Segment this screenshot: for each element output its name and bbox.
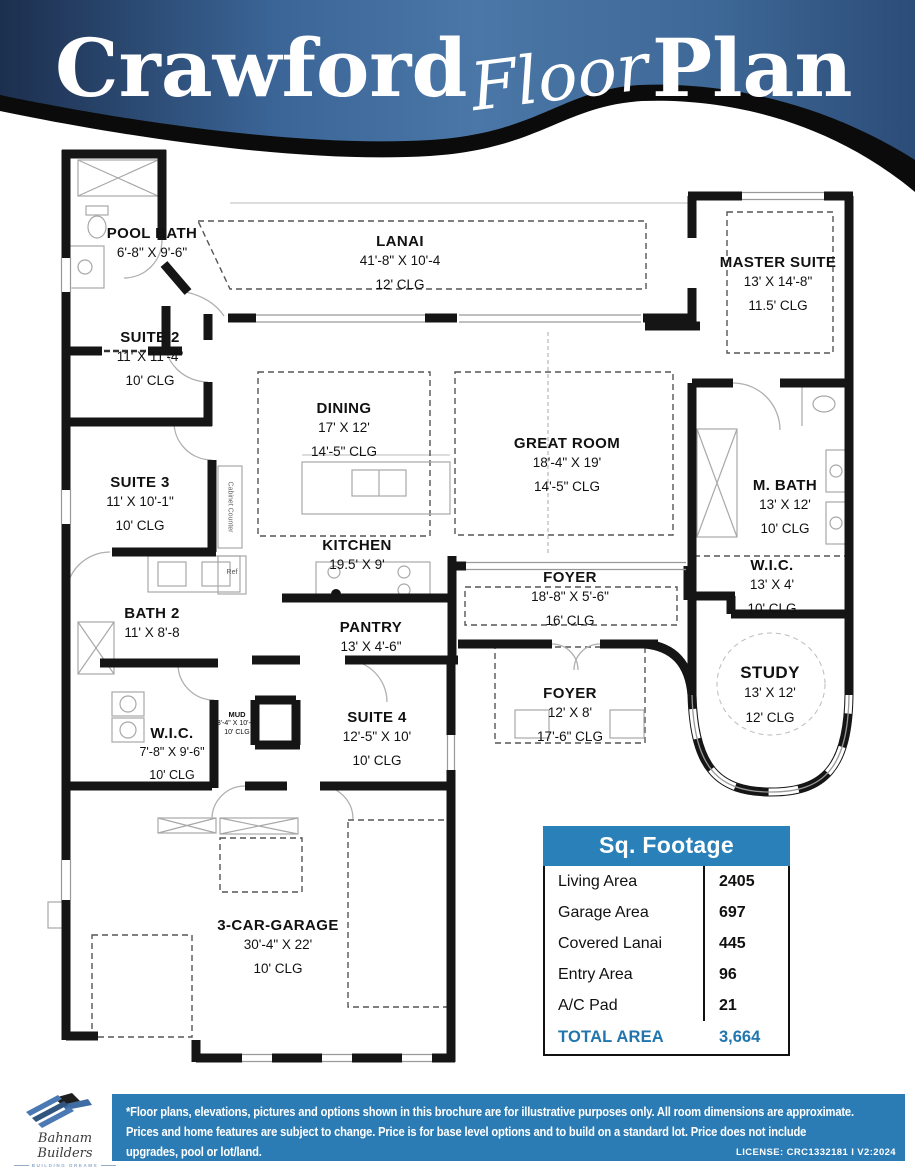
room-clg: 16' CLG (531, 612, 609, 630)
room-clg: 10' CLG (106, 517, 174, 535)
room-name: W.I.C. (747, 556, 796, 576)
tagline-text: BUILDING DREAMS (32, 1163, 99, 1168)
room-name: KITCHEN (322, 536, 391, 556)
row-value: 96 (703, 959, 788, 990)
room-label-study: STUDY 13' X 12' 12' CLG (740, 662, 800, 726)
room-name: M. BATH (753, 476, 817, 496)
room-label-kitchen: KITCHEN 19.5' X 9' (322, 536, 391, 573)
room-dims: 13' X 4' (747, 576, 796, 594)
row-value: 445 (703, 928, 788, 959)
room-dims: 18'-8" X 5'-6" (531, 588, 609, 606)
room-name: SUITE 3 (106, 473, 174, 493)
room-dims: 11' X 10'-1" (106, 493, 174, 511)
room-clg: 12' CLG (360, 276, 441, 294)
disclaimer-line: Prices and home features are subject to … (126, 1122, 787, 1142)
row-label: Entry Area (545, 966, 703, 984)
room-clg: 10' CLG (217, 729, 257, 738)
table-row: Entry Area 96 (545, 959, 788, 990)
room-clg: 11.5' CLG (720, 297, 836, 315)
room-name: DINING (311, 399, 377, 419)
table-row: Garage Area 697 (545, 897, 788, 928)
disclaimer-box: *Floor plans, elevations, pictures and o… (112, 1094, 905, 1161)
room-label-master-suite: MASTER SUITE 13' X 14'-8" 11.5' CLG (720, 253, 836, 315)
row-value: 2405 (703, 866, 788, 897)
brochure-page: POOL BATH 6'-8" X 9'-6" LANAI 41'-8" X 1… (0, 0, 915, 1173)
row-value: 21 (703, 990, 788, 1021)
room-dims: 18'-4" X 19' (514, 454, 620, 472)
table-row: Covered Lanai 445 (545, 928, 788, 959)
room-name: SUITE 4 (343, 708, 412, 728)
room-dims: 11' X 8'-8 (124, 624, 179, 642)
room-dims: 13' X 12' (753, 496, 817, 514)
room-label-dining: DINING 17' X 12' 14'-5" CLG (311, 399, 377, 461)
table-row: Living Area 2405 (545, 866, 788, 897)
room-name: STUDY (740, 662, 800, 684)
room-label-suite-3: SUITE 3 11' X 10'-1" 10' CLG (106, 473, 174, 535)
row-label: Covered Lanai (545, 935, 703, 953)
total-label: TOTAL AREA (545, 1028, 703, 1047)
room-dims: 11' X 11'-4" (117, 348, 184, 366)
room-name: MUD (217, 710, 257, 720)
disclaimer-line: upgrades, pool or lot/land. (126, 1142, 787, 1162)
cabinet-counter-label: Cabinet Counter (227, 482, 234, 533)
room-label-great-room: GREAT ROOM 18'-4" X 19' 14'-5" CLG (514, 434, 620, 496)
room-label-mud: MUD 3'-4" X 10'-0" 10' CLG (217, 710, 257, 737)
room-clg: 10' CLG (753, 520, 817, 538)
room-dims: 41'-8" X 10'-4 (360, 252, 441, 270)
sq-footage-body: Living Area 2405 Garage Area 697 Covered… (543, 866, 790, 1056)
room-label-garage: 3-CAR-GARAGE 30'-4" X 22' 10' CLG (217, 916, 338, 978)
total-value: 3,664 (703, 1021, 788, 1054)
room-name: FOYER (537, 684, 603, 704)
room-label-pantry: PANTRY 13' X 4'-6" (340, 618, 402, 655)
license-text: LICENSE: CRC1332181 I V2:2024 (736, 1147, 896, 1158)
room-name: FOYER (531, 568, 609, 588)
row-label: Garage Area (545, 904, 703, 922)
room-label-suite-4: SUITE 4 12'-5" X 10' 10' CLG (343, 708, 412, 770)
room-dims: 17' X 12' (311, 419, 377, 437)
room-dims: 7'-8" X 9'-6" (139, 744, 204, 760)
room-dims: 3'-4" X 10'-0" (217, 720, 257, 729)
room-name: SUITE 2 (117, 328, 184, 348)
room-dims: 12' X 8' (537, 704, 603, 722)
row-label: Living Area (545, 873, 703, 891)
room-clg: 10' CLG (117, 372, 184, 390)
room-label-bath-2: BATH 2 11' X 8'-8 (124, 604, 179, 641)
builder-logo-name: Bahnam Builders (14, 1131, 116, 1161)
room-label-foyer-main: FOYER 18'-8" X 5'-6" 16' CLG (531, 568, 609, 630)
table-row-total: TOTAL AREA 3,664 (545, 1021, 788, 1054)
room-name: LANAI (360, 232, 441, 252)
room-name: PANTRY (340, 618, 402, 638)
room-name: W.I.C. (139, 724, 204, 744)
room-dims: 13' X 4'-6" (340, 638, 402, 656)
room-clg: 10' CLG (217, 960, 338, 978)
room-clg: 10' CLG (343, 752, 412, 770)
room-dims: 12'-5" X 10' (343, 728, 412, 746)
room-clg: 12' CLG (740, 709, 800, 727)
room-clg: 17'-6" CLG (537, 728, 603, 746)
room-label-wic-2: W.I.C. 7'-8" X 9'-6" 10' CLG (139, 724, 204, 783)
room-label-foyer-entry: FOYER 12' X 8' 17'-6" CLG (537, 684, 603, 746)
room-label-m-bath: M. BATH 13' X 12' 10' CLG (753, 476, 817, 538)
room-label-lanai: LANAI 41'-8" X 10'-4 12' CLG (360, 232, 441, 294)
ref-label: Ref (227, 569, 238, 576)
table-row: A/C Pad 21 (545, 990, 788, 1021)
room-dims: 6'-8" X 9'-6" (107, 244, 198, 262)
room-dims: 30'-4" X 22' (217, 936, 338, 954)
room-dims: 13' X 14'-8" (720, 273, 836, 291)
room-name: MASTER SUITE (720, 253, 836, 273)
disclaimer-line: *Floor plans, elevations, pictures and o… (126, 1102, 787, 1122)
room-label-suite-2: SUITE 2 11' X 11'-4" 10' CLG (117, 328, 184, 390)
room-label-wic-master: W.I.C. 13' X 4' 10' CLG (747, 556, 796, 618)
room-clg: 10' CLG (747, 600, 796, 618)
room-label-pool-bath: POOL BATH 6'-8" X 9'-6" (107, 224, 198, 261)
room-dims: 13' X 12' (740, 684, 800, 702)
builder-logo-icon (14, 1086, 116, 1130)
room-name: BATH 2 (124, 604, 179, 624)
row-label: A/C Pad (545, 997, 703, 1015)
sq-footage-table: Sq. Footage Living Area 2405 Garage Area… (543, 826, 790, 1056)
room-name: 3-CAR-GARAGE (217, 916, 338, 936)
sq-footage-title: Sq. Footage (543, 826, 790, 866)
row-value: 697 (703, 897, 788, 928)
room-name: GREAT ROOM (514, 434, 620, 454)
room-dims: 19.5' X 9' (322, 556, 391, 574)
room-clg: 10' CLG (139, 767, 204, 783)
room-clg: 14'-5" CLG (311, 443, 377, 461)
room-name: POOL BATH (107, 224, 198, 244)
builder-logo-tagline: BUILDING DREAMS (14, 1163, 116, 1168)
builder-logo: Bahnam Builders BUILDING DREAMS (14, 1086, 116, 1168)
room-clg: 14'-5" CLG (514, 478, 620, 496)
